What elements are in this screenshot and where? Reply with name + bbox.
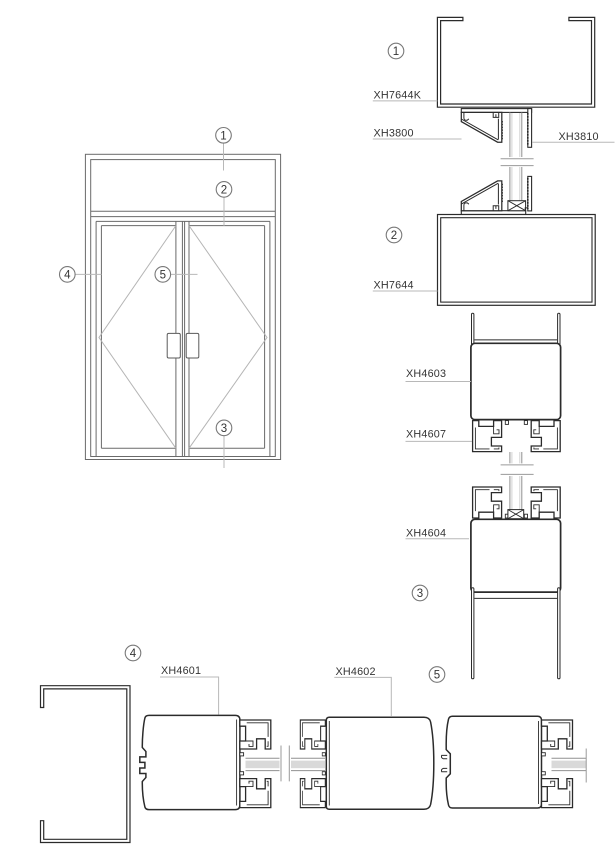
svg-text:5: 5	[160, 269, 166, 281]
svg-text:XH4602: XH4602	[336, 666, 376, 678]
svg-text:5: 5	[434, 670, 440, 682]
svg-text:4: 4	[130, 648, 137, 660]
svg-text:1: 1	[393, 46, 399, 58]
svg-text:XH7644K: XH7644K	[374, 90, 422, 102]
svg-text:XH4601: XH4601	[161, 665, 201, 677]
svg-text:XH3800: XH3800	[374, 128, 414, 140]
svg-text:3: 3	[417, 588, 423, 600]
svg-text:3: 3	[221, 423, 227, 435]
svg-text:XH3810: XH3810	[559, 131, 599, 143]
svg-text:2: 2	[391, 230, 397, 242]
svg-text:XH4604: XH4604	[406, 528, 446, 540]
svg-text:4: 4	[64, 269, 71, 281]
svg-text:XH4603: XH4603	[406, 368, 446, 380]
svg-text:2: 2	[221, 184, 227, 196]
svg-text:XH7644: XH7644	[374, 280, 414, 292]
svg-text:XH4607: XH4607	[406, 429, 446, 441]
svg-text:1: 1	[220, 130, 226, 142]
